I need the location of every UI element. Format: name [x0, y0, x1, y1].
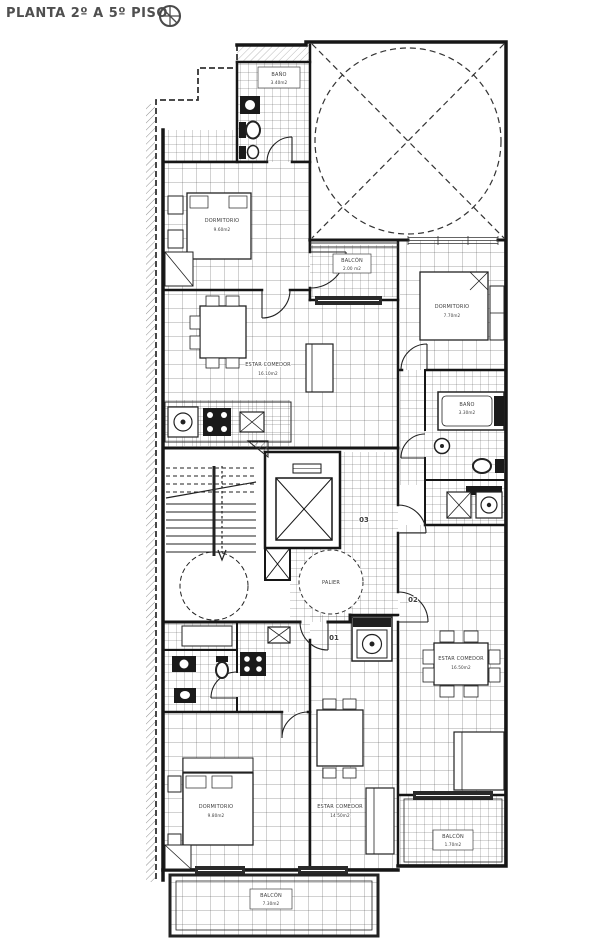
- label-dorm-1: DORMITORIO: [205, 218, 239, 224]
- area-estar-3: 14.50m2: [330, 813, 350, 818]
- dining-table-3: [317, 699, 363, 778]
- area-balcon-2: 1.70m2: [445, 842, 462, 847]
- sofa-2: [454, 732, 504, 790]
- door-number-02: 02: [408, 596, 418, 604]
- door-number-01: 01: [329, 634, 339, 642]
- area-balcon-1: 2.00 m2: [343, 266, 361, 271]
- label-dorm-2: DORMITORIO: [435, 304, 469, 310]
- label-estar-1: ESTAR COMEDOR: [245, 362, 291, 368]
- label-balcon-3: BALCÓN: [260, 892, 282, 899]
- closet-1: [165, 252, 193, 286]
- bed-3: [183, 758, 253, 845]
- toilet-3: [216, 662, 228, 678]
- stove-1: [203, 408, 231, 436]
- stove-3: [240, 652, 266, 676]
- sofa-1: [306, 344, 333, 392]
- area-bano-1: 3.40m2: [271, 80, 288, 85]
- staircase: [166, 466, 256, 620]
- area-balcon-3: 7.30m2: [263, 901, 280, 906]
- washer-1: [168, 407, 198, 437]
- toilet-tank: [239, 122, 246, 138]
- label-bano-1: BAÑO: [271, 71, 286, 78]
- label-bano-2: BAÑO: [459, 401, 474, 408]
- laundry-closet: [352, 617, 392, 661]
- label-palier: PALIER: [322, 580, 340, 586]
- label-dorm-3: DORMITORIO: [199, 804, 233, 810]
- compass-icon: [160, 6, 180, 26]
- area-dorm-3: 9.80m2: [208, 813, 225, 818]
- kitchen-sink-2: [447, 492, 471, 518]
- area-dorm-2: 7.70m2: [444, 313, 461, 318]
- nightstand: [168, 196, 183, 214]
- floorplan-page: { "header": { "title": "PLANTA 2º A 5º P…: [0, 0, 612, 950]
- sofa-3: [366, 788, 394, 854]
- label-estar-3: ESTAR COMEDOR: [317, 804, 363, 810]
- area-dorm-1: 9.60m2: [214, 227, 231, 232]
- area-estar-1: 16.10m2: [258, 371, 278, 376]
- bed-1: [187, 193, 251, 259]
- counter-3: [182, 626, 232, 646]
- void-patio: [312, 44, 504, 238]
- area-estar-2: 16.50m2: [451, 665, 471, 670]
- closet-3: [165, 845, 191, 869]
- label-balcon-1: BALCÓN: [341, 257, 363, 264]
- door-number-03: 03: [359, 516, 369, 524]
- kitchen-sink-3: [268, 627, 290, 643]
- label-balcon-2: BALCÓN: [442, 833, 464, 840]
- floor-plan-drawing: BAÑO 3.40m2 DORMITORIO 9.60m2 ESTAR COME…: [0, 0, 612, 950]
- washer-2: [476, 492, 502, 518]
- label-estar-2: ESTAR COMEDOR: [438, 656, 484, 662]
- kitchen-sink-1: [240, 412, 264, 432]
- nightstand: [168, 776, 181, 792]
- wardrobe-2: [490, 286, 504, 340]
- nightstand: [168, 230, 183, 248]
- area-bano-2: 3.30m2: [459, 410, 476, 415]
- bidet-1: [248, 146, 259, 159]
- bidet-tank: [239, 146, 246, 159]
- toilet-1: [246, 122, 260, 139]
- toilet-2: [473, 459, 491, 473]
